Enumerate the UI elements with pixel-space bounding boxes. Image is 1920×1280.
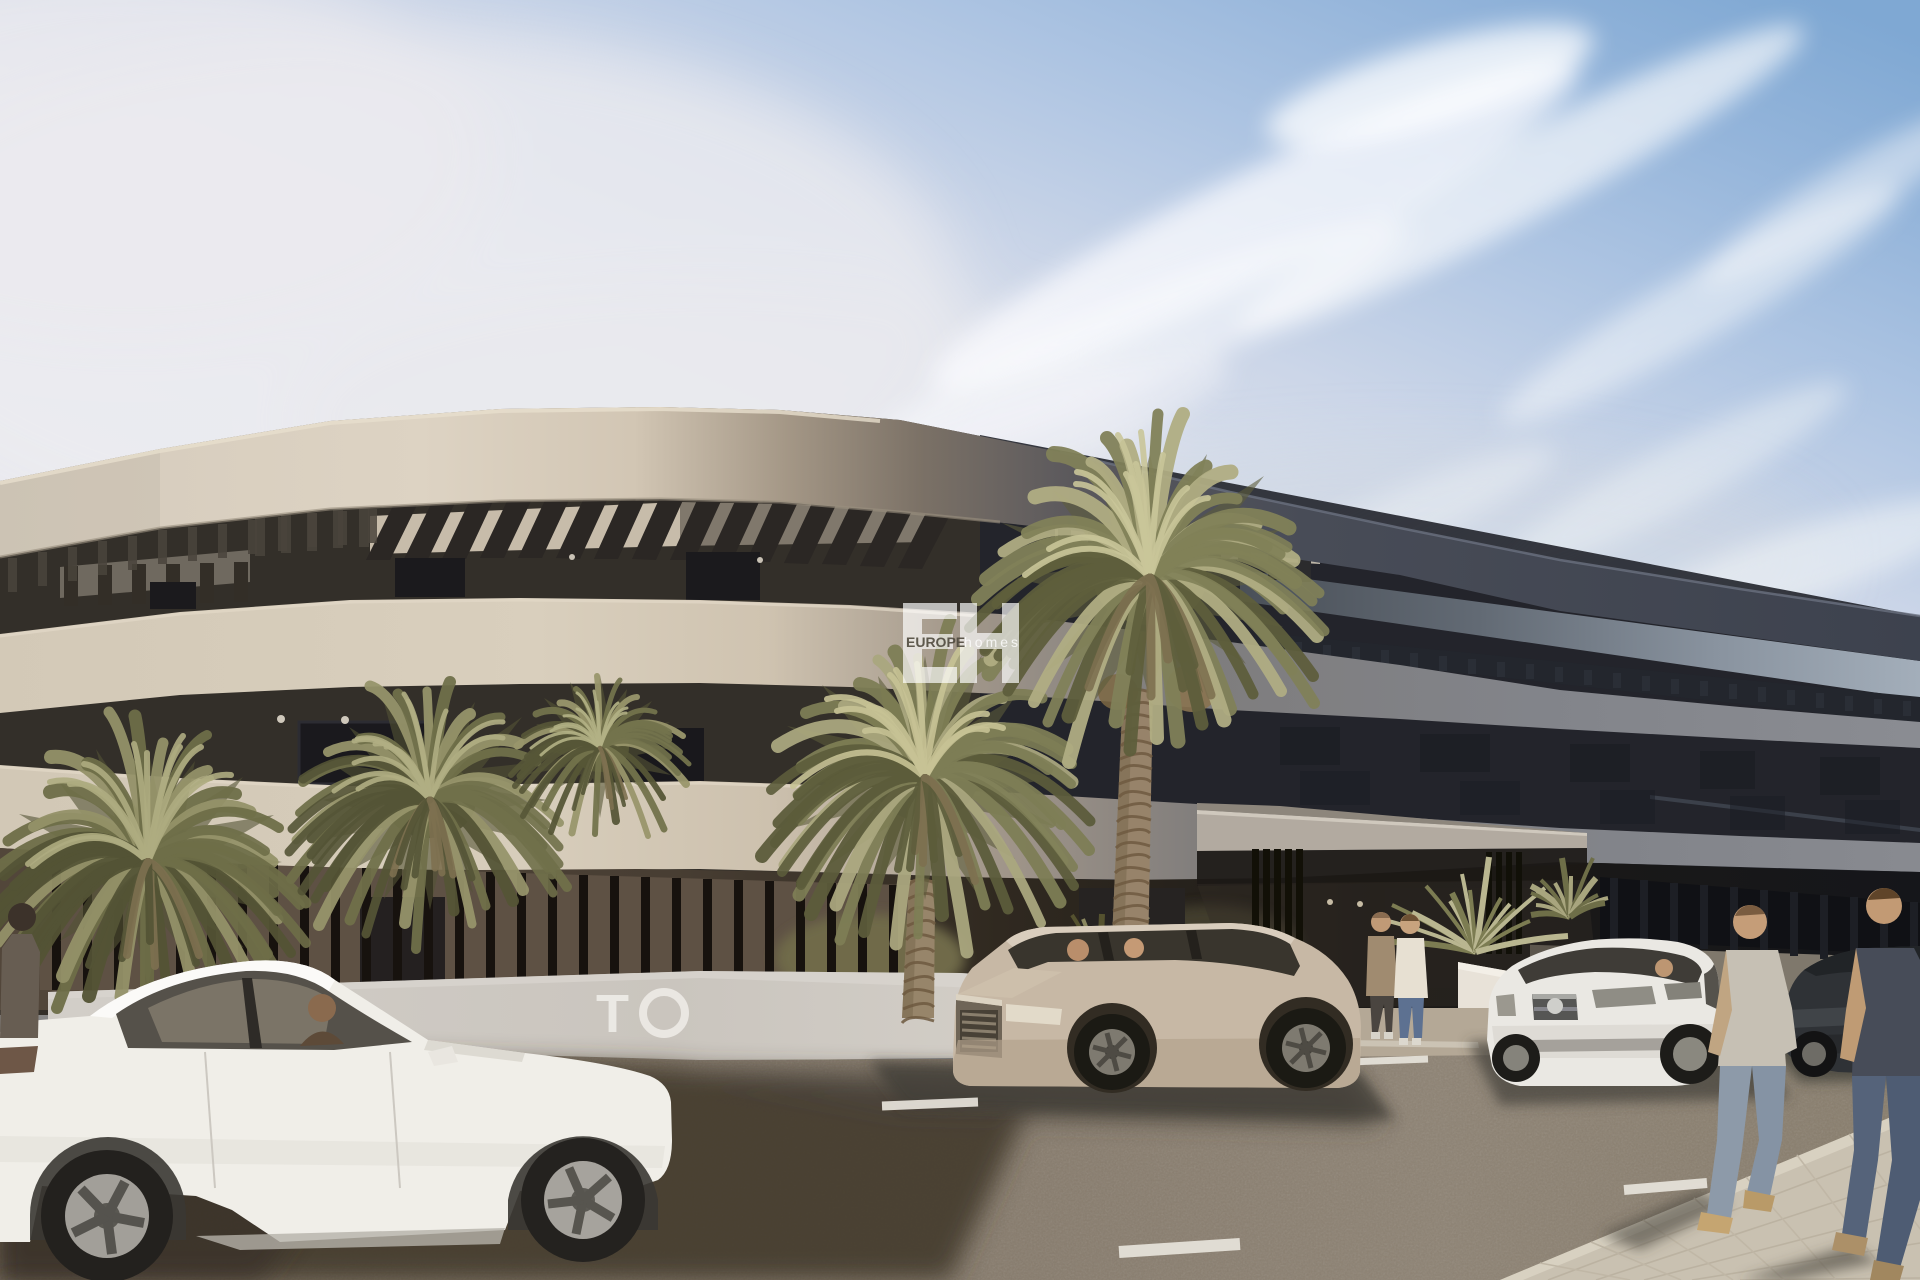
svg-text:homes: homes bbox=[964, 634, 1021, 650]
svg-text:T: T bbox=[596, 984, 629, 1044]
svg-text:EUROPE: EUROPE bbox=[906, 634, 965, 650]
